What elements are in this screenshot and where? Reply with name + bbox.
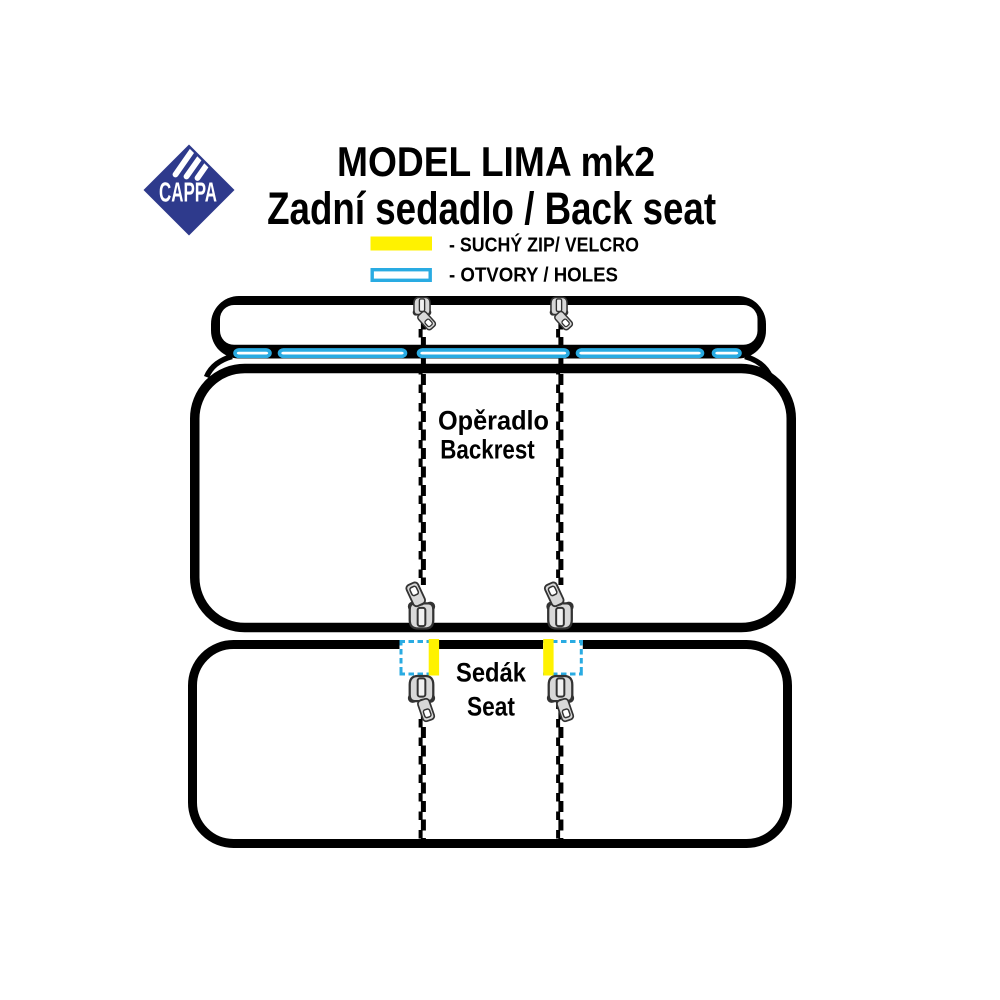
svg-text:- SUCHÝ ZIP/ VELCRO: - SUCHÝ ZIP/ VELCRO bbox=[449, 232, 639, 256]
svg-text:MODEL LIMA mk2: MODEL LIMA mk2 bbox=[337, 138, 655, 185]
svg-text:Seat: Seat bbox=[467, 691, 515, 721]
svg-text:Zadní sedadlo / Back seat: Zadní sedadlo / Back seat bbox=[267, 183, 716, 234]
svg-text:CAPPA: CAPPA bbox=[159, 177, 217, 208]
svg-text:- OTVORY / HOLES: - OTVORY / HOLES bbox=[449, 263, 618, 286]
svg-text:Opěradlo: Opěradlo bbox=[438, 406, 549, 436]
svg-text:Backrest: Backrest bbox=[440, 435, 535, 465]
svg-text:Sedák: Sedák bbox=[456, 658, 526, 688]
